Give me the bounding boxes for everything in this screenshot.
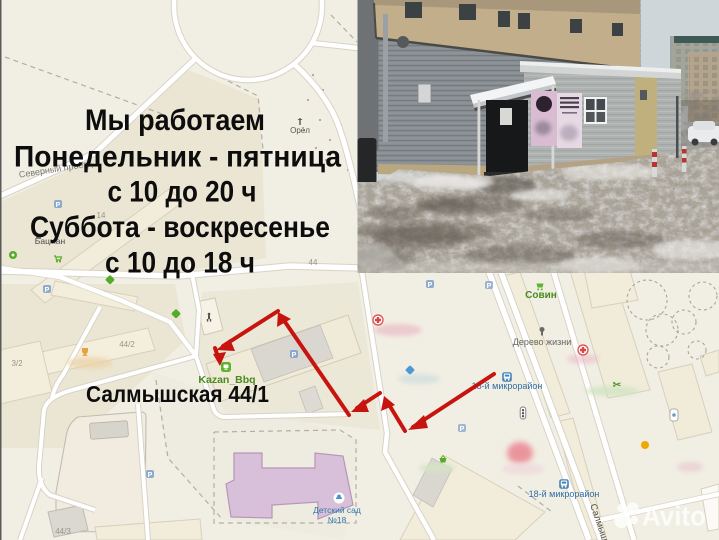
svg-text:Орёл: Орёл <box>290 126 310 135</box>
svg-text:P: P <box>292 352 297 359</box>
svg-text:Салмышская 44/1: Салмышская 44/1 <box>86 381 269 407</box>
svg-text:44/3: 44/3 <box>55 527 71 536</box>
svg-text:Дерево жизни: Дерево жизни <box>513 337 571 347</box>
svg-text:44: 44 <box>309 258 318 267</box>
svg-text:Понедельник - пятница: Понедельник - пятница <box>14 141 341 174</box>
svg-text:3/2: 3/2 <box>11 359 23 368</box>
svg-text:Avito: Avito <box>642 501 706 532</box>
svg-text:с 10 до 18 ч: с 10 до 18 ч <box>105 247 255 280</box>
svg-text:P: P <box>56 202 61 209</box>
svg-text:✂: ✂ <box>613 380 622 391</box>
svg-text:Мы работаем: Мы работаем <box>85 104 265 137</box>
svg-text:Суббота - воскресенье: Суббота - воскресенье <box>30 211 330 244</box>
svg-text:№18: №18 <box>328 515 347 525</box>
svg-text:P: P <box>487 283 492 290</box>
svg-text:с 10 до 20 ч: с 10 до 20 ч <box>108 176 257 209</box>
svg-text:18-й микрорайон: 18-й микрорайон <box>529 489 600 499</box>
svg-text:P: P <box>460 426 465 433</box>
svg-text:Детский сад: Детский сад <box>313 505 361 515</box>
svg-text:P: P <box>428 282 433 289</box>
svg-text:44/2: 44/2 <box>119 340 135 349</box>
svg-text:Совин: Совин <box>525 290 557 301</box>
svg-text:P: P <box>45 287 50 294</box>
svg-text:P: P <box>148 472 153 479</box>
